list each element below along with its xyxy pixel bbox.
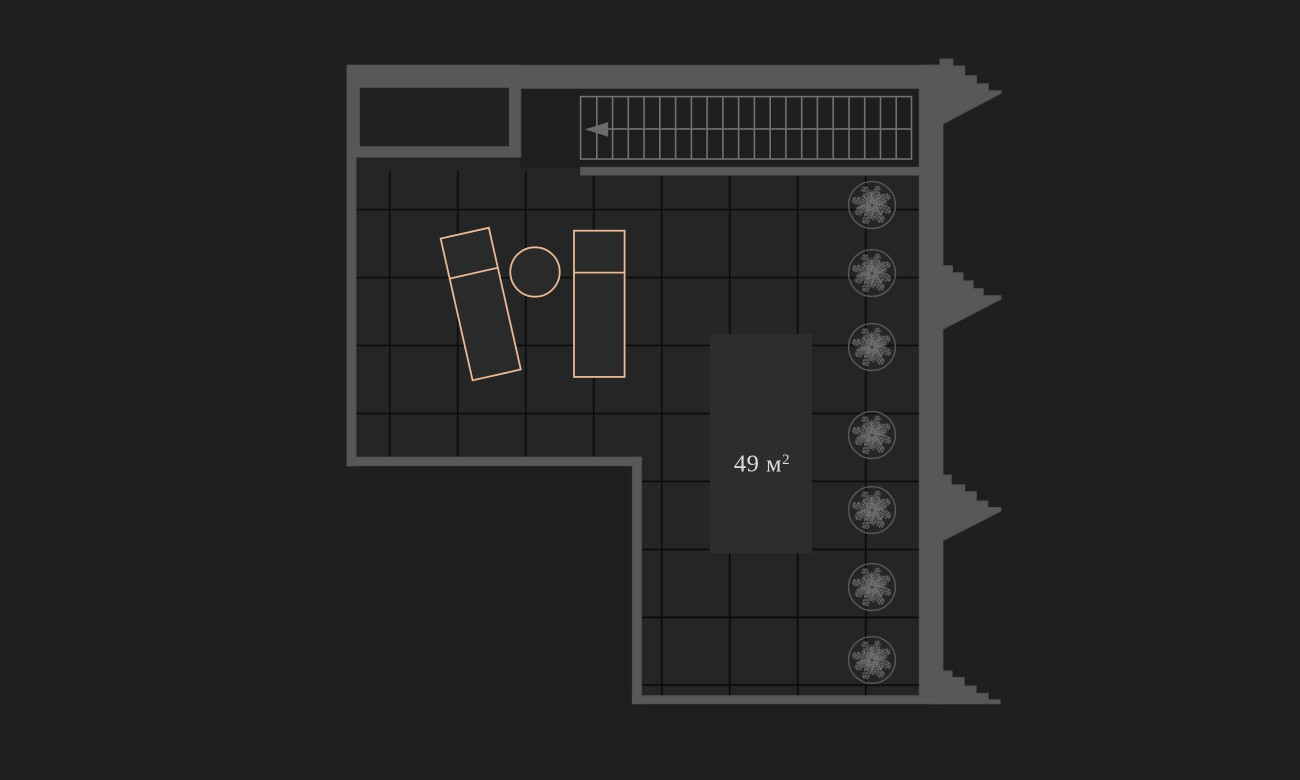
svg-text:49 м2: 49 м2 <box>734 450 790 477</box>
